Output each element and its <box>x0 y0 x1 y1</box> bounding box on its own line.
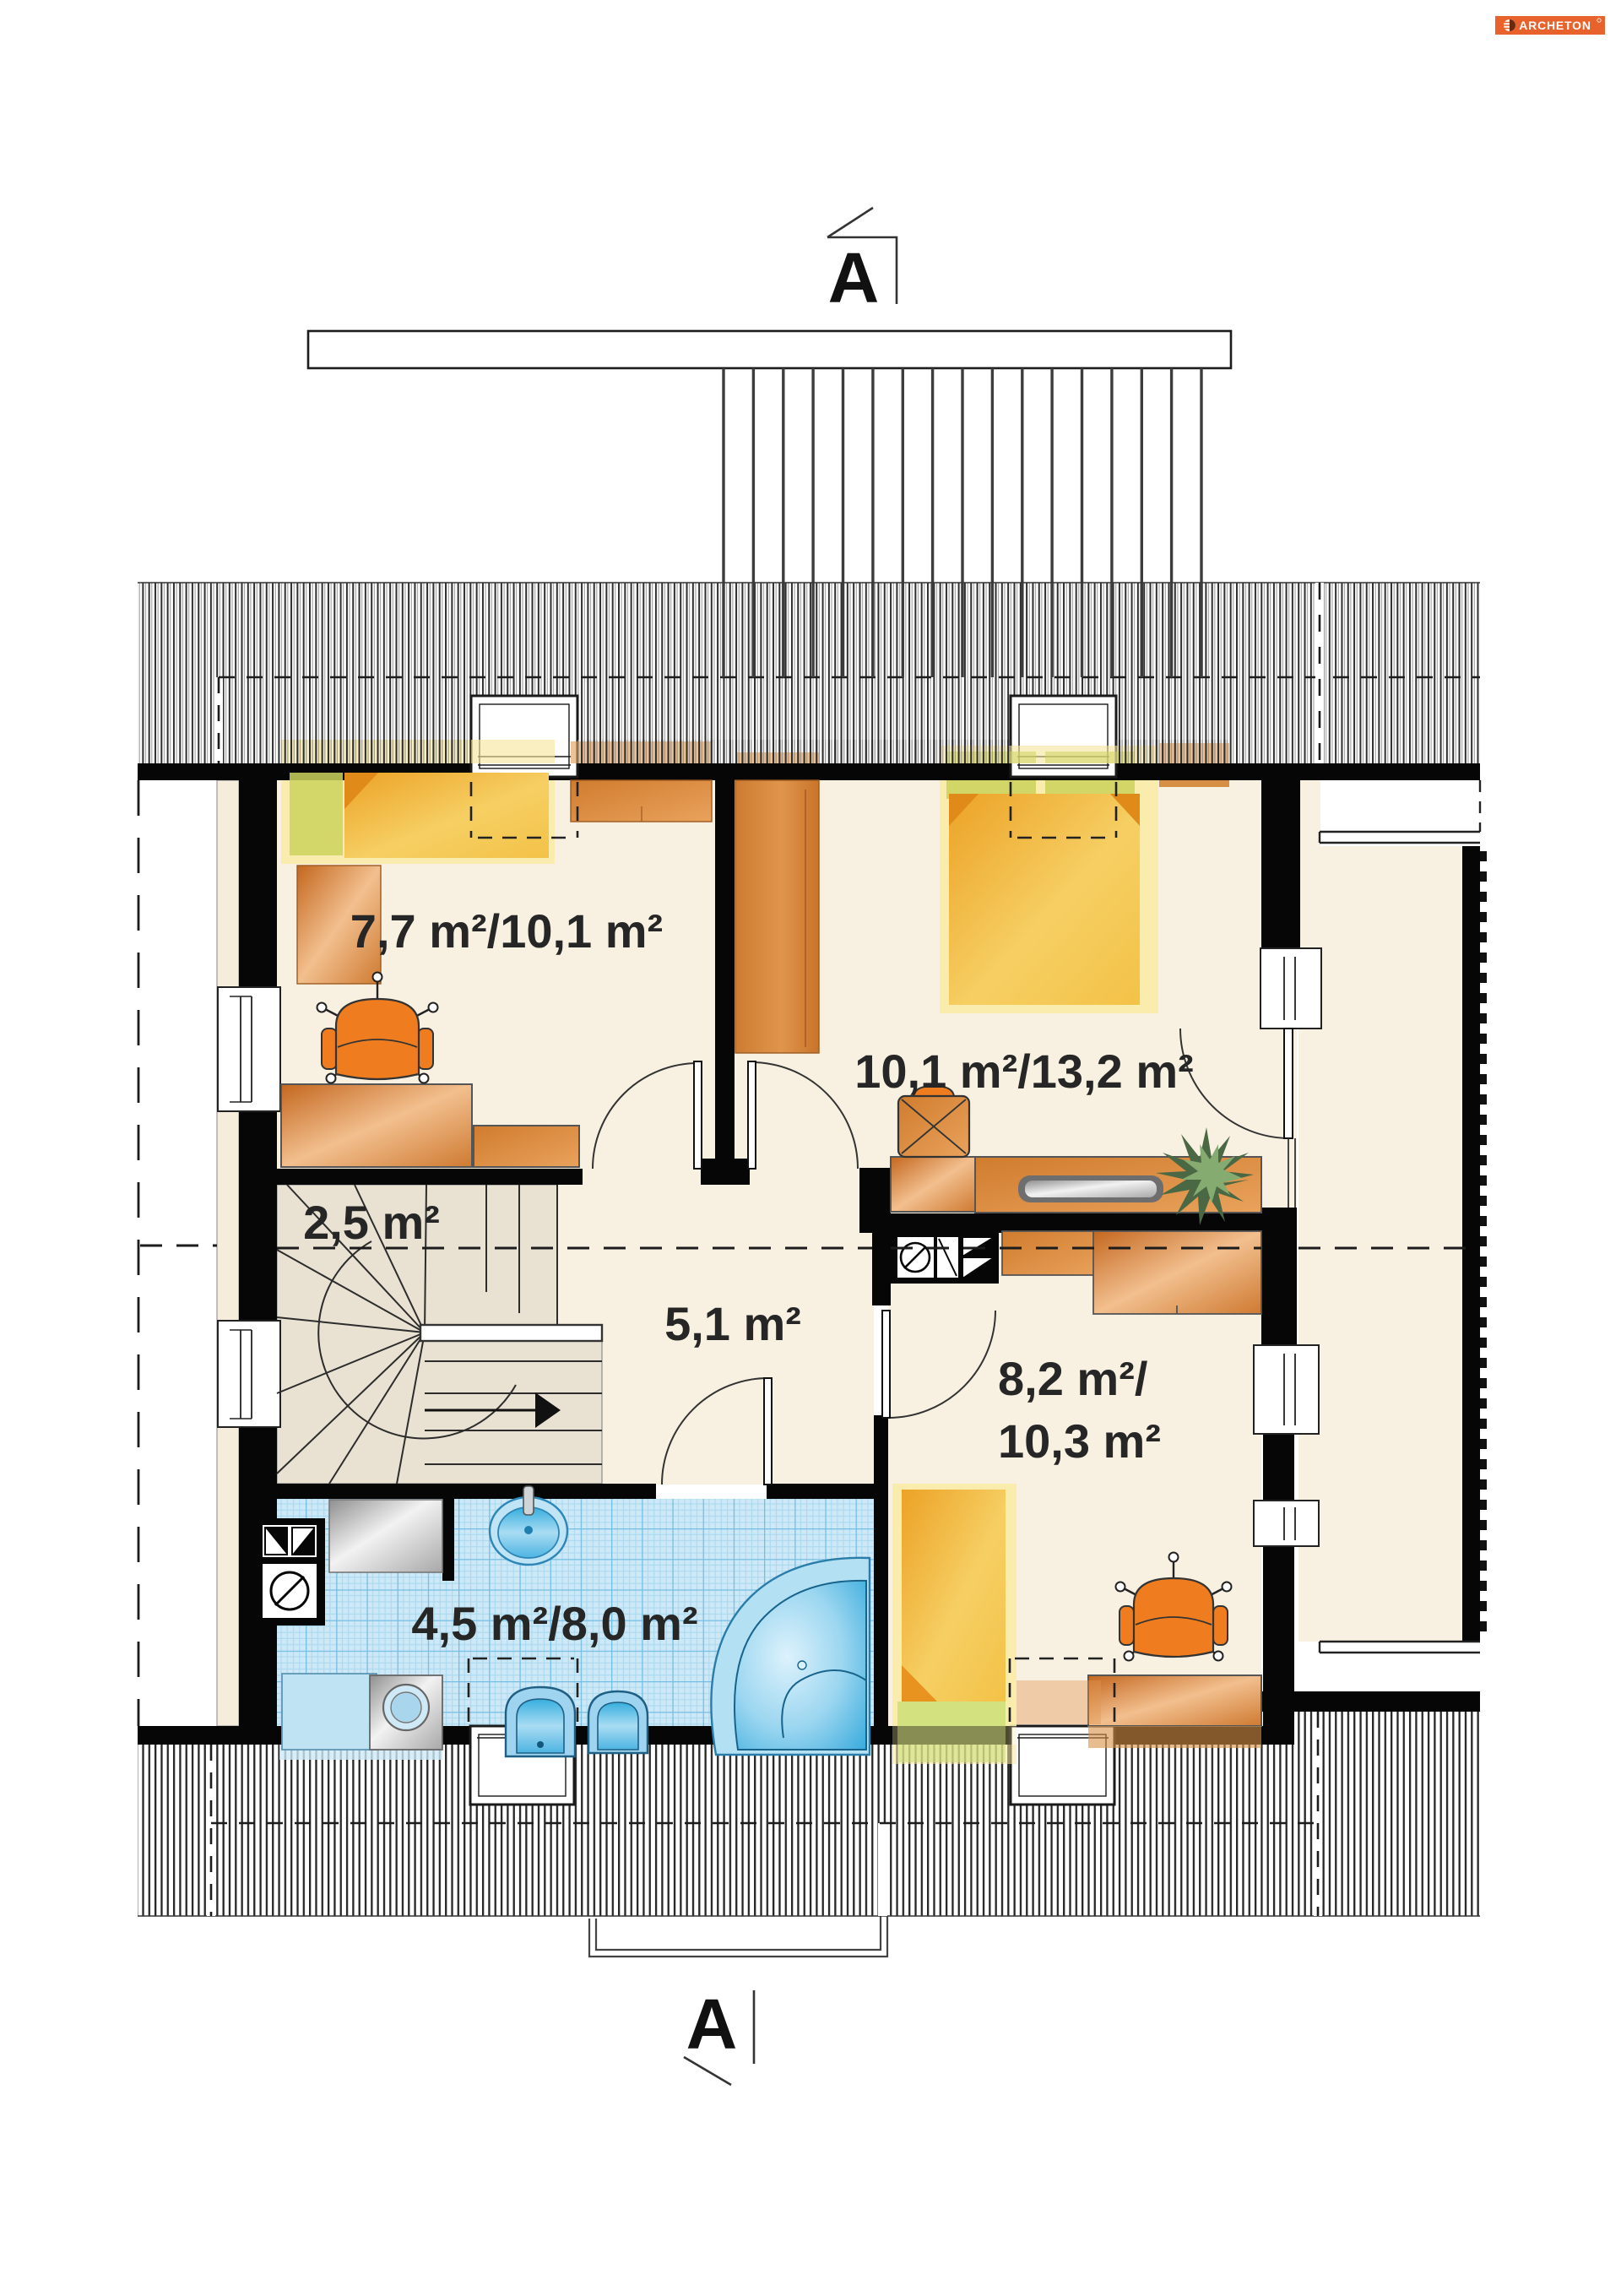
svg-text:8,2 m²/: 8,2 m²/ <box>998 1352 1148 1405</box>
svg-text:2,5 m²: 2,5 m² <box>303 1196 440 1249</box>
svg-text:5,1 m²: 5,1 m² <box>664 1297 801 1350</box>
svg-text:ARCHETON: ARCHETON <box>1519 19 1591 32</box>
svg-text:7,7 m²/10,1 m²: 7,7 m²/10,1 m² <box>350 904 663 958</box>
svg-text:4,5 m²/8,0 m²: 4,5 m²/8,0 m² <box>411 1597 697 1650</box>
svg-text:A: A <box>686 1984 738 2064</box>
svg-text:10,1 m²/13,2 m²: 10,1 m²/13,2 m² <box>854 1045 1194 1098</box>
svg-text:10,3 m²: 10,3 m² <box>998 1414 1161 1468</box>
svg-text:A: A <box>828 238 880 318</box>
